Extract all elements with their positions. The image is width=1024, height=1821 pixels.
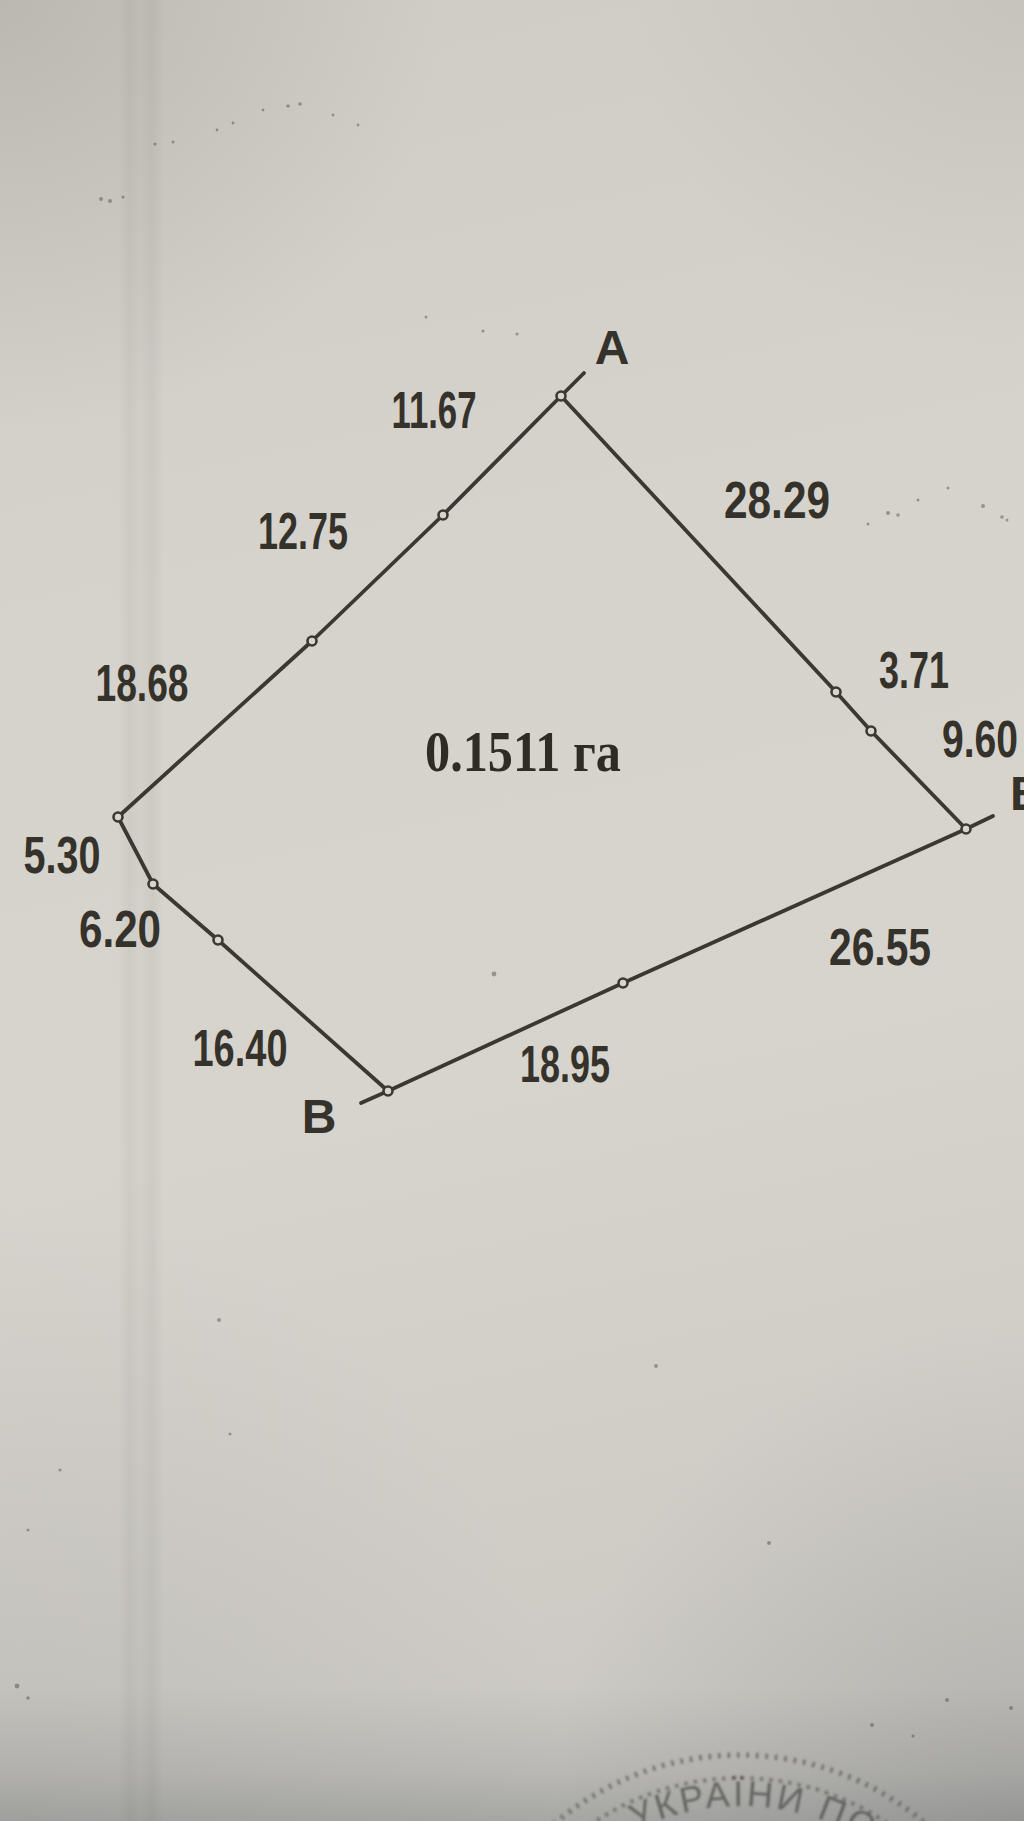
vertex-label-b-right: Б bbox=[1010, 767, 1024, 820]
side-label-12-75: 12.75 bbox=[258, 502, 348, 560]
survey-point bbox=[557, 392, 566, 401]
land-plan-photo: 11.67 28.29 3.71 9.60 26.55 18.95 16.40 … bbox=[0, 0, 1024, 1821]
side-label-18-95: 18.95 bbox=[520, 1035, 610, 1093]
side-label-18-68: 18.68 bbox=[96, 654, 189, 712]
side-label-16-40: 16.40 bbox=[193, 1019, 288, 1077]
survey-point bbox=[214, 936, 223, 945]
vertex-label-v-bottom: В bbox=[302, 1090, 337, 1143]
survey-point bbox=[149, 880, 158, 889]
side-label-3-71: 3.71 bbox=[879, 641, 949, 699]
survey-point bbox=[308, 637, 317, 646]
area-label: 0.1511 га bbox=[425, 719, 621, 784]
survey-point bbox=[832, 688, 841, 697]
survey-point bbox=[114, 813, 123, 822]
stamp-arc-text: УКРАЇНИ ПО bbox=[622, 1773, 886, 1821]
survey-point bbox=[384, 1087, 393, 1096]
side-label-11-67: 11.67 bbox=[392, 381, 477, 439]
side-label-9-60: 9.60 bbox=[942, 710, 1018, 768]
side-label-26-55: 26.55 bbox=[829, 918, 931, 976]
survey-point bbox=[962, 825, 971, 834]
side-label-28-29: 28.29 bbox=[724, 471, 830, 529]
plan-drawing: 11.67 28.29 3.71 9.60 26.55 18.95 16.40 … bbox=[0, 0, 1024, 1821]
survey-point bbox=[619, 979, 628, 988]
survey-point bbox=[867, 727, 876, 736]
stamp-seal: УКРАЇНИ ПО bbox=[455, 1755, 1024, 1821]
side-label-6-20: 6.20 bbox=[79, 900, 161, 958]
vertex-label-a: А bbox=[595, 321, 630, 374]
survey-point bbox=[439, 511, 448, 520]
side-label-5-30: 5.30 bbox=[24, 826, 101, 884]
